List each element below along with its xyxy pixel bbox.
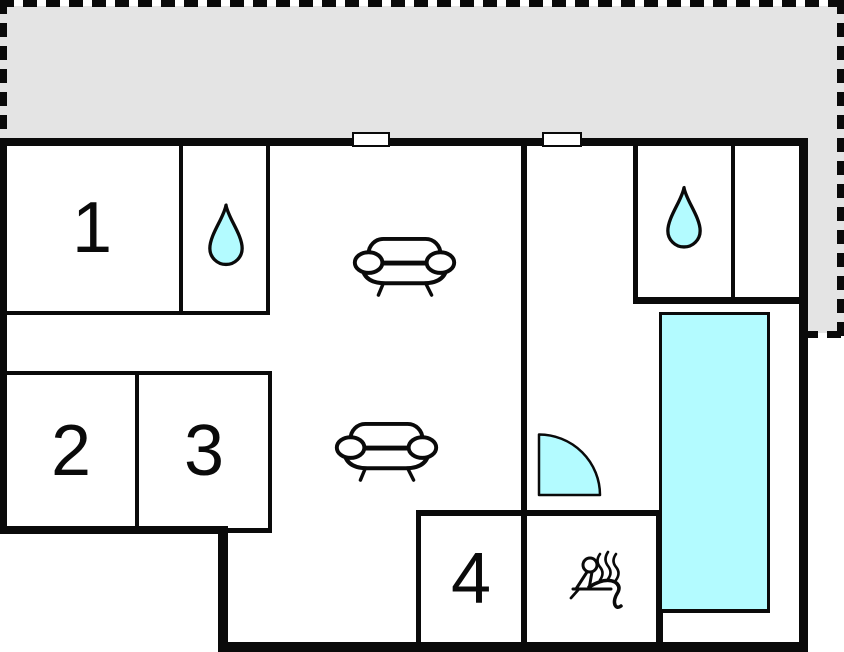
pool-icon [659, 312, 770, 613]
terrace-dashed-border-bottom-right [804, 331, 844, 338]
room1-divider-wall [179, 141, 183, 315]
terrace-dashed-border-left [0, 0, 7, 140]
room-1-label: 1 [72, 192, 112, 264]
water-drop-icon [207, 202, 245, 269]
window-icon [542, 132, 582, 147]
outer-wall-step-vertical [218, 526, 228, 652]
terrace-area [0, 6, 844, 140]
window-icon [352, 132, 390, 147]
room-4-label: 4 [451, 543, 491, 615]
room4-sauna-top-wall [416, 510, 662, 516]
water-drop-icon [665, 183, 703, 253]
outer-wall-bottom [218, 642, 808, 652]
rooms23-divider-wall [135, 371, 139, 532]
room-3-label: 3 [184, 415, 224, 487]
room1-bottom-wall [3, 311, 270, 315]
room1-right-wall [266, 141, 270, 315]
outer-wall-right [799, 138, 808, 652]
shower-icon [537, 433, 602, 497]
floor-plan: 1 2 3 4 [0, 0, 844, 652]
outer-wall-step-bottom [0, 526, 228, 534]
rooms23-right-wall [268, 371, 272, 532]
room-2-label: 2 [51, 415, 91, 487]
outer-wall-left [0, 138, 7, 534]
sauna-icon [563, 549, 647, 613]
terrace-dashed-border-top [0, 0, 844, 7]
sofa-icon [334, 421, 439, 482]
bathroom2-left-wall [633, 146, 638, 304]
bathroom2-divider-wall [731, 146, 735, 299]
outer-wall-top [0, 138, 808, 146]
terrace-dashed-border-right [837, 0, 844, 339]
bathroom2-bottom-wall [633, 297, 799, 304]
room4-left-wall [416, 516, 421, 642]
center-vertical-wall [521, 146, 527, 647]
sofa-icon [352, 236, 457, 297]
